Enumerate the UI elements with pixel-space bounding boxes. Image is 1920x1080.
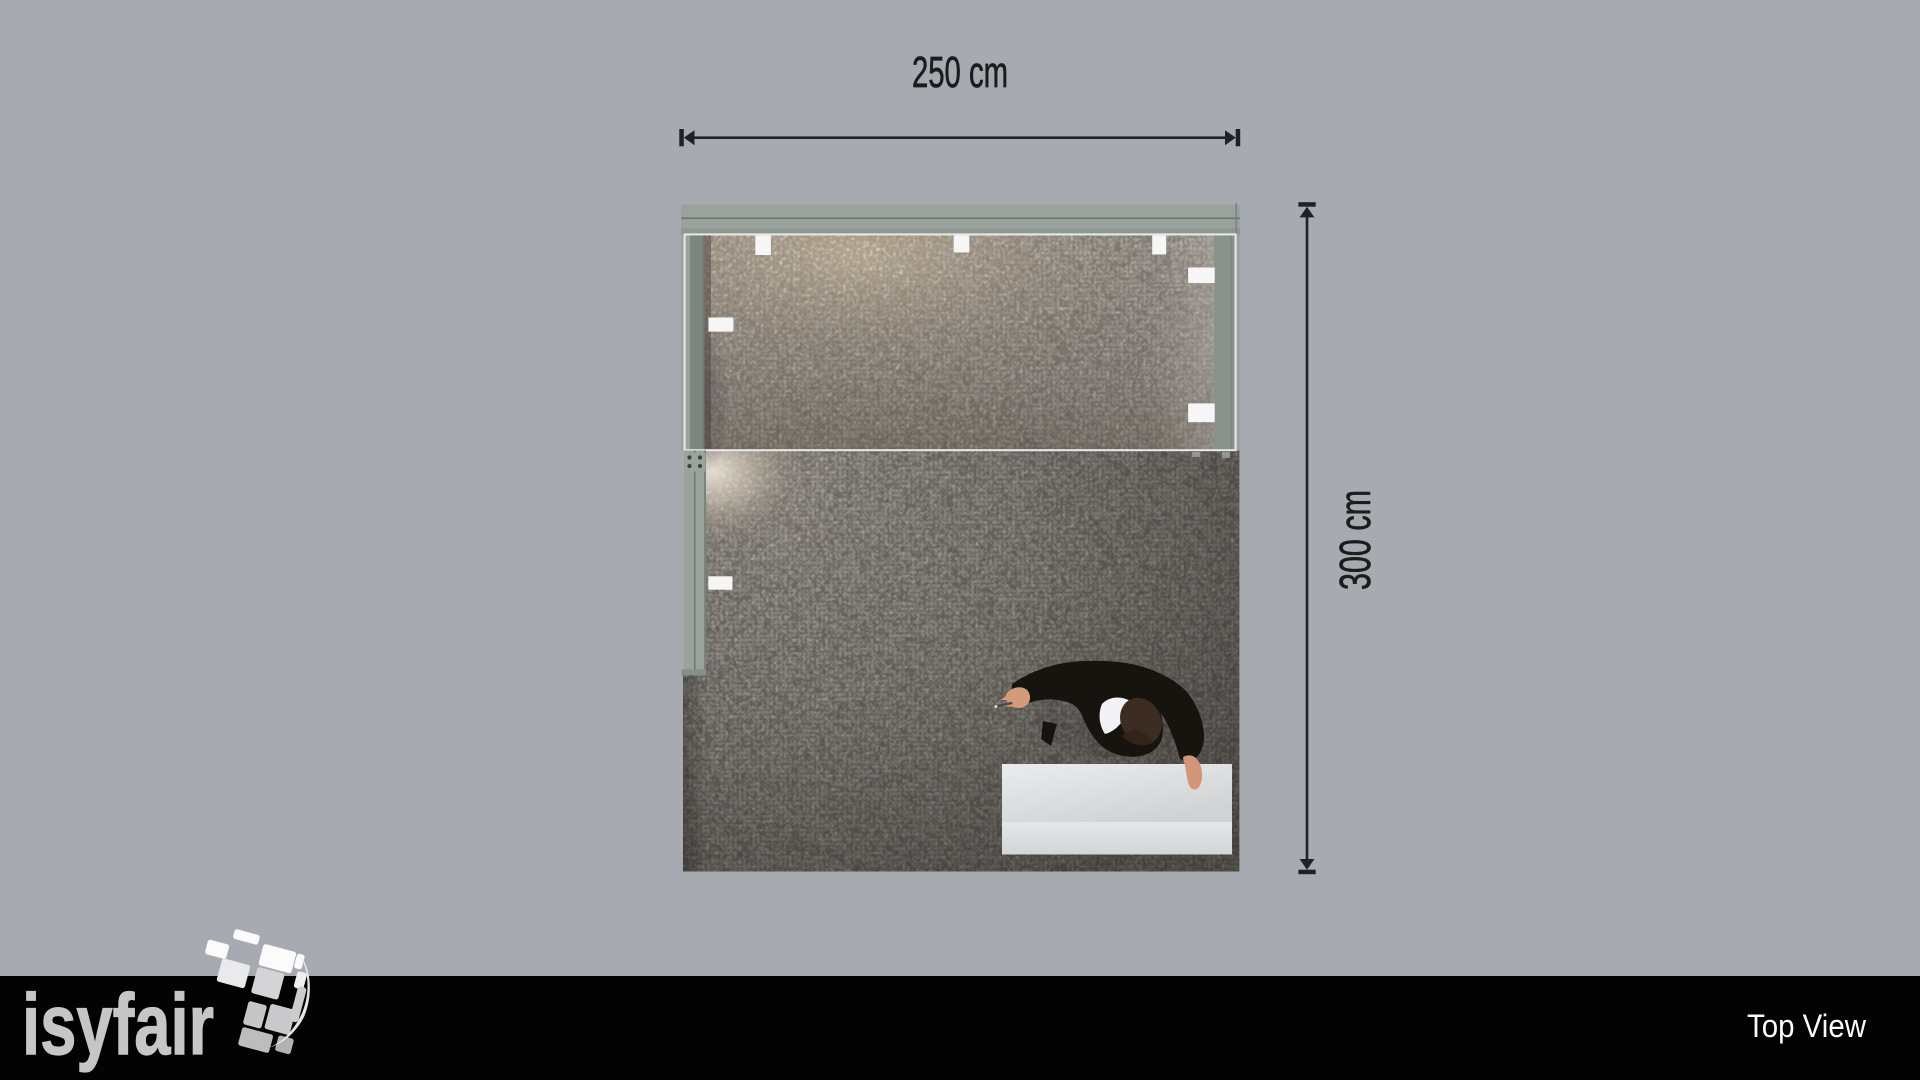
svg-text:300 cm: 300 cm (1331, 490, 1380, 590)
svg-text:isyfair: isyfair (22, 977, 214, 1073)
svg-text:Top View: Top View (1747, 1008, 1867, 1044)
svg-text:250 cm: 250 cm (912, 48, 1008, 97)
